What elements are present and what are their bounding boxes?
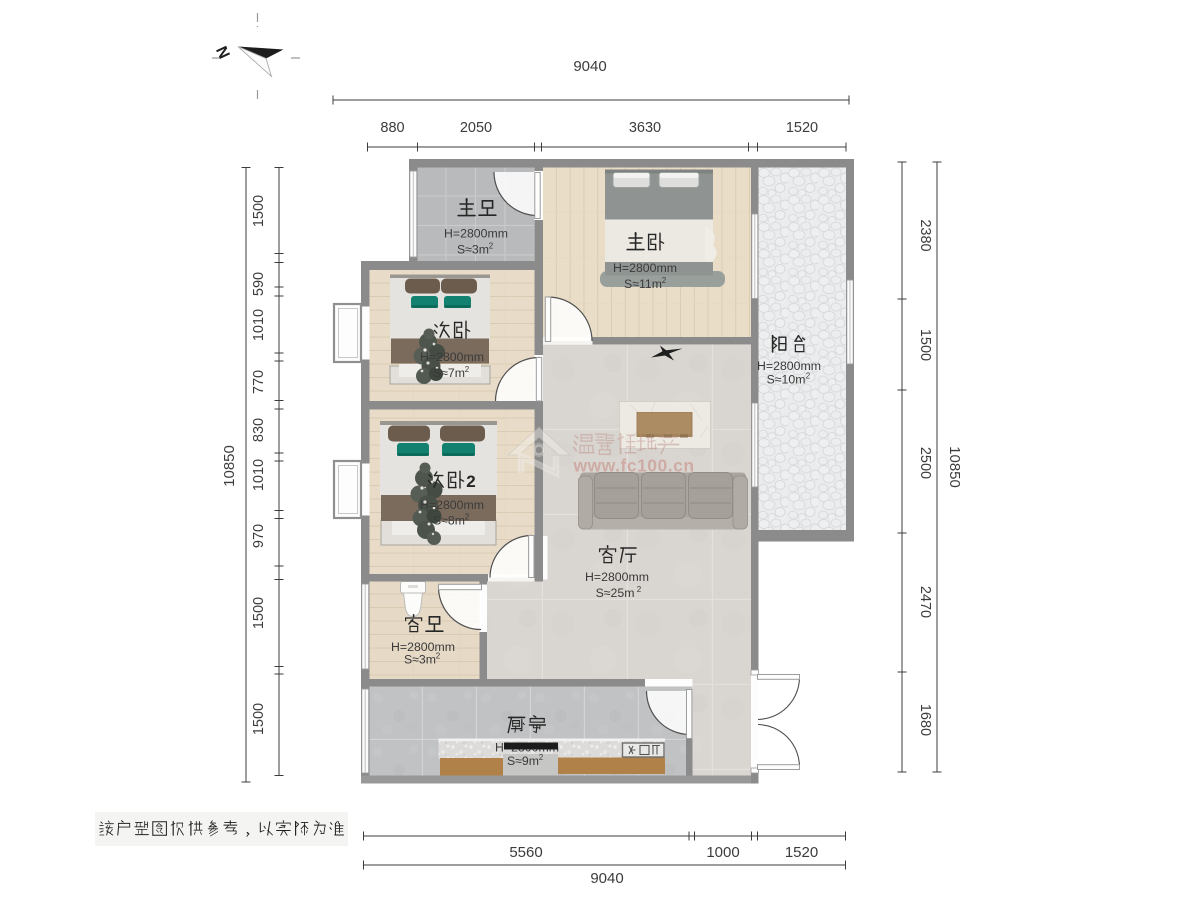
svg-text:H=2800mm: H=2800mm <box>420 350 484 364</box>
svg-text:2: 2 <box>806 372 811 381</box>
svg-text:590: 590 <box>251 272 267 296</box>
svg-text:2380: 2380 <box>917 219 933 251</box>
svg-text:9040: 9040 <box>573 58 606 75</box>
svg-text:1010: 1010 <box>251 459 267 491</box>
svg-text:1680: 1680 <box>917 704 933 736</box>
svg-text:2: 2 <box>465 513 470 522</box>
svg-text:1000: 1000 <box>706 844 739 861</box>
svg-text:H=2800mm: H=2800mm <box>585 570 649 584</box>
svg-text:www.fc100.cn: www.fc100.cn <box>572 456 694 476</box>
svg-text:2: 2 <box>637 585 642 594</box>
svg-text:2: 2 <box>539 753 544 762</box>
svg-text:880: 880 <box>380 120 404 136</box>
svg-text:1500: 1500 <box>251 703 267 735</box>
svg-text:H=2800mm: H=2800mm <box>420 498 484 512</box>
svg-text:3630: 3630 <box>629 120 661 136</box>
svg-text:S≈10m: S≈10m <box>767 373 806 387</box>
svg-text:H=2800mm: H=2800mm <box>444 227 508 241</box>
svg-text:2: 2 <box>489 242 494 251</box>
svg-text:1010: 1010 <box>251 309 267 341</box>
svg-text:1520: 1520 <box>785 844 818 861</box>
svg-text:5560: 5560 <box>509 844 542 861</box>
svg-text:10850: 10850 <box>221 445 238 487</box>
svg-text:2050: 2050 <box>460 120 492 136</box>
svg-text:S≈25m: S≈25m <box>596 586 635 600</box>
svg-text:S≈8m: S≈8m <box>433 514 465 528</box>
svg-text:10850: 10850 <box>946 446 963 488</box>
svg-text:2: 2 <box>436 652 441 661</box>
svg-text:H=2800mm: H=2800mm <box>757 359 821 373</box>
svg-text:2: 2 <box>465 365 470 374</box>
svg-text:S≈7m: S≈7m <box>433 366 465 380</box>
svg-text:H=2800mm: H=2800mm <box>613 261 677 275</box>
svg-text:1520: 1520 <box>786 120 818 136</box>
svg-text:2470: 2470 <box>917 586 933 618</box>
svg-text:2: 2 <box>466 472 475 491</box>
svg-text:1500: 1500 <box>251 597 267 629</box>
svg-text:S≈9m: S≈9m <box>507 754 539 768</box>
svg-text:S≈3m: S≈3m <box>404 653 436 667</box>
svg-text:S≈11m: S≈11m <box>624 277 662 291</box>
svg-text:1500: 1500 <box>917 329 933 361</box>
svg-text:830: 830 <box>251 418 267 442</box>
svg-text:770: 770 <box>251 370 267 394</box>
svg-text:2500: 2500 <box>917 447 933 479</box>
svg-text:1500: 1500 <box>251 195 267 227</box>
svg-text:S≈3m: S≈3m <box>457 243 489 257</box>
svg-text:2: 2 <box>662 276 667 285</box>
svg-text:9040: 9040 <box>590 870 623 887</box>
svg-text:970: 970 <box>251 524 267 548</box>
